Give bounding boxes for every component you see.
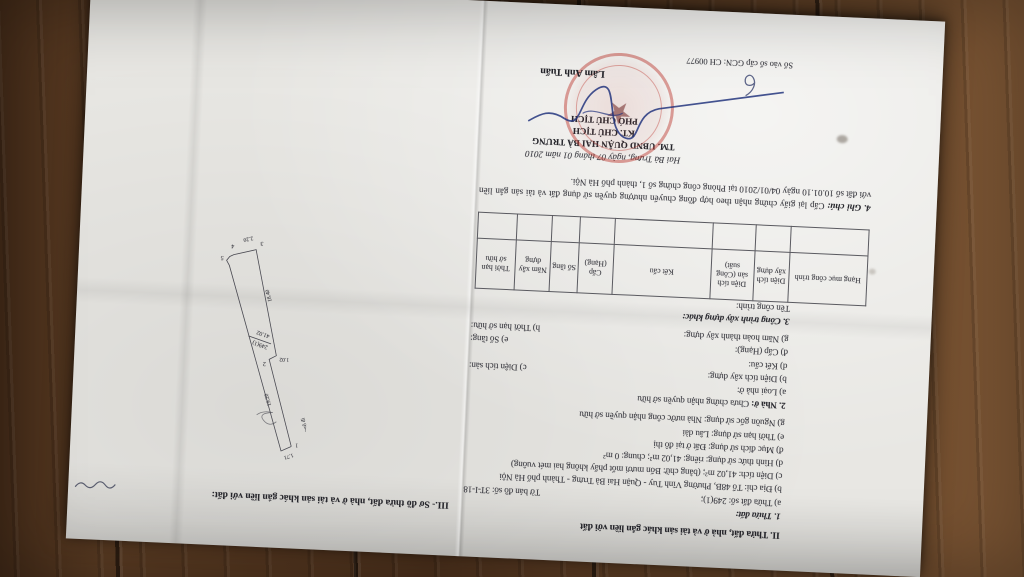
col-ket-cau: Kết cấu bbox=[612, 244, 712, 298]
col-cap-hang: Cấp (Hạng) bbox=[577, 243, 614, 295]
parcel-diagram: 1 2 3 4 5 1.71 19.20 18.40 1.02 2.20 ngõ… bbox=[195, 221, 316, 461]
alley-label: ngõ đi bbox=[300, 417, 310, 433]
pen-mark bbox=[739, 70, 760, 99]
page-sections: II. Thửa đất, nhà ở và tài sản khác gắn … bbox=[458, 1, 945, 577]
col-nam-xd: Năm xây dựng bbox=[514, 240, 551, 292]
certificate-sheet: II. Thửa đất, nhà ở và tài sản khác gắn … bbox=[66, 0, 945, 577]
parcel-area: 41.02 bbox=[256, 329, 271, 339]
col-dt-san: Diện tích sàn (Công suất) bbox=[709, 249, 754, 301]
note-paragraph: 4. Ghi chú: Cấp lại giấy chứng nhận theo… bbox=[479, 172, 872, 215]
col-dt-xay-dung: Diện tích xây dựng bbox=[752, 251, 789, 303]
house-title-text: Chưa chứng nhận quyền sở hữu bbox=[637, 394, 749, 409]
pen-note-scribble bbox=[256, 411, 277, 424]
col-thoi-han: Thời hạn sở hữu bbox=[475, 238, 516, 290]
house-floor-area: c) Diện tích sàn: bbox=[463, 358, 527, 374]
note-label: 4. Ghi chú: bbox=[827, 202, 871, 214]
note-text: Cấp lại giấy chứng nhận theo hợp đồng ch… bbox=[479, 177, 872, 211]
corner-2-label: 2 bbox=[263, 360, 266, 366]
edge-top-width: 1.71 bbox=[283, 452, 294, 461]
pen-squiggle bbox=[71, 478, 118, 494]
text-block: II. Thửa đất, nhà ở và tài sản khác gắn … bbox=[456, 287, 791, 541]
house-grade: đ) Cấp (Hạng): bbox=[735, 344, 789, 360]
parcel-number: 249(1) bbox=[251, 339, 268, 351]
corner-4-label: 4 bbox=[231, 243, 234, 249]
photo-of-document-on-wooden-table: { "colors": { "paper": "#e8e7e3", "wood"… bbox=[0, 0, 1024, 577]
corner-3-label: 3 bbox=[260, 240, 263, 246]
col-so-tang: Số tầng bbox=[549, 242, 579, 293]
corner-1-label: 1 bbox=[295, 442, 298, 448]
section-iii-heading: III.- Sơ đồ thửa đất, nhà ở và tài sản k… bbox=[83, 483, 449, 510]
corner-5-label: 5 bbox=[221, 254, 224, 260]
house-storeys: e) Số tầng: bbox=[464, 331, 508, 346]
edge-step-length: 1.02 bbox=[279, 356, 289, 362]
edge-bottom-width: 2.20 bbox=[243, 235, 254, 243]
edge-right-length: 19.20 bbox=[264, 393, 273, 407]
page-diagram: III.- Sơ đồ thửa đất, nhà ở và tài sản k… bbox=[66, 0, 484, 556]
house-title-label: 2. Nhà ở: bbox=[751, 399, 786, 411]
col-hang-muc: Hạng mục công trình bbox=[788, 252, 868, 305]
